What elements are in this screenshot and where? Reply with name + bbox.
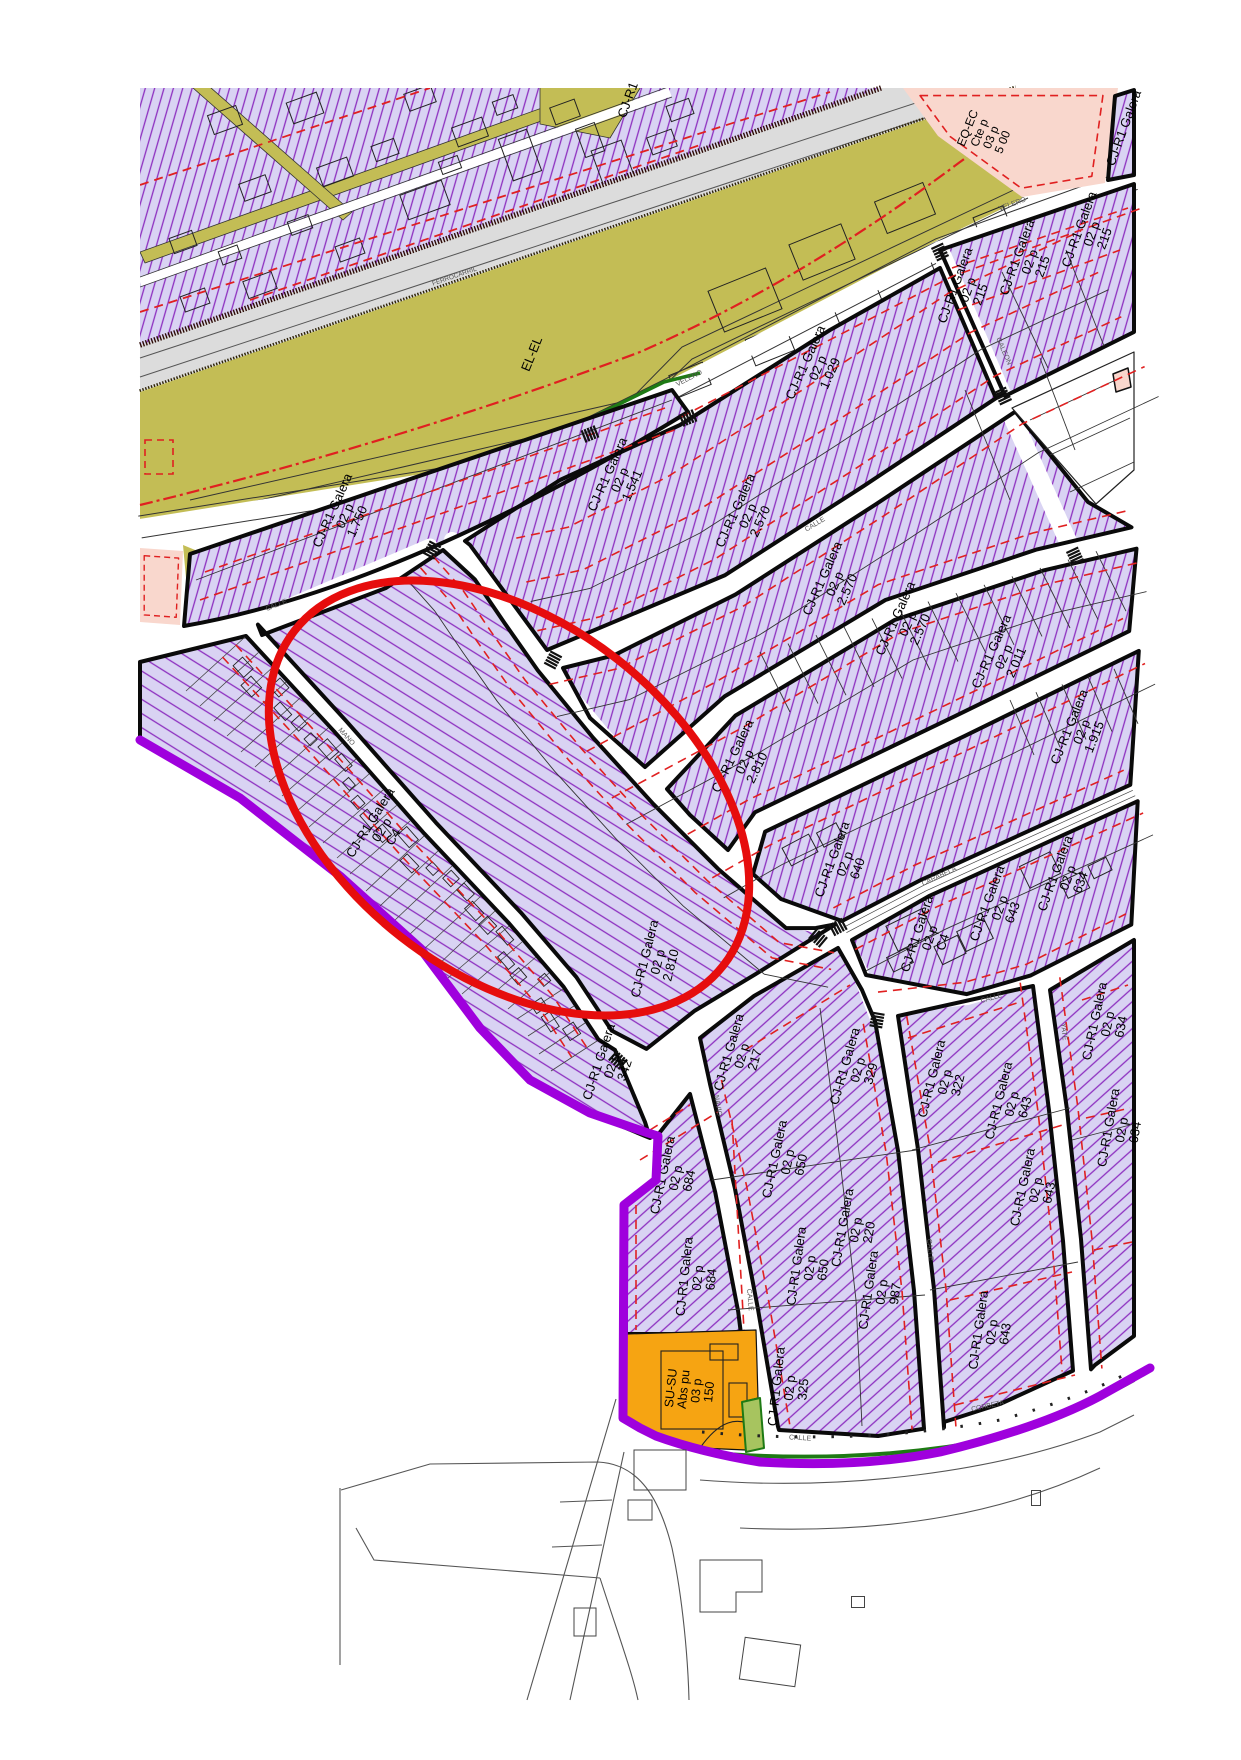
svg-text:CALLE: CALLE (789, 1434, 812, 1442)
